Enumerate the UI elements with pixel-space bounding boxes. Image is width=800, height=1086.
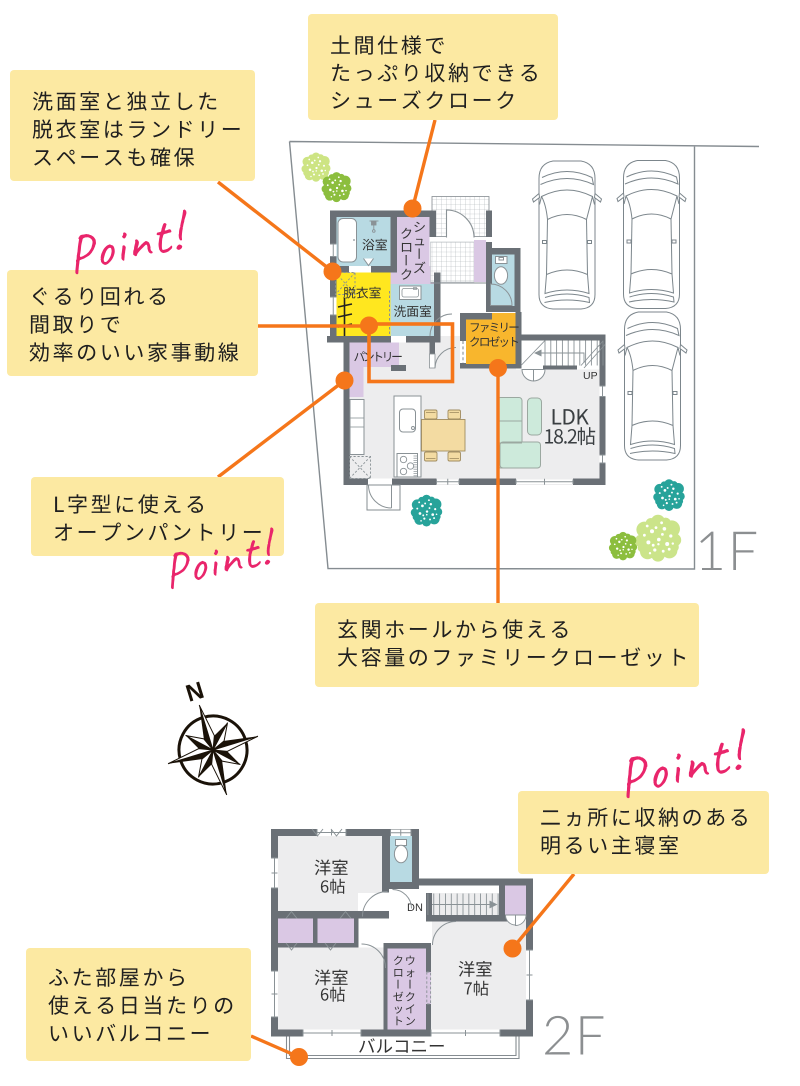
svg-text:UP: UP	[583, 370, 598, 382]
svg-text:DN: DN	[407, 902, 423, 914]
